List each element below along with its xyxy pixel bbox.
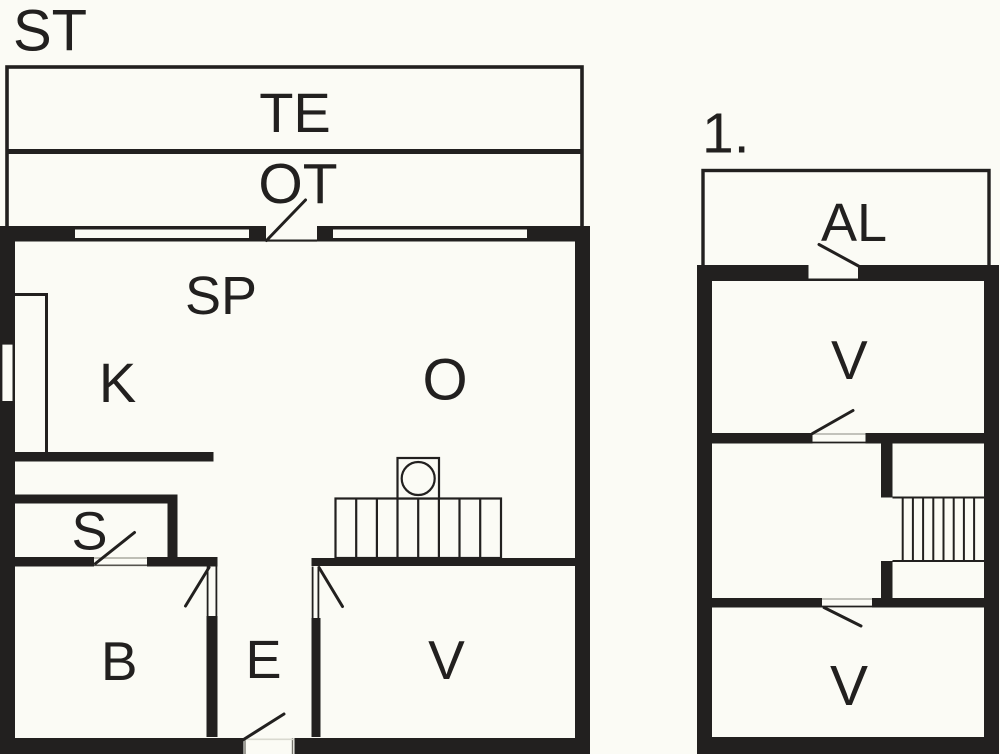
svg-text:SP: SP bbox=[185, 266, 257, 326]
svg-text:V: V bbox=[830, 654, 868, 718]
svg-text:V: V bbox=[831, 329, 868, 391]
svg-text:TE: TE bbox=[259, 81, 331, 144]
svg-text:O: O bbox=[422, 348, 467, 413]
svg-text:AL: AL bbox=[821, 193, 887, 253]
svg-text:K: K bbox=[99, 351, 136, 414]
svg-text:ST: ST bbox=[13, 0, 87, 64]
svg-text:1.: 1. bbox=[702, 102, 750, 166]
svg-text:S: S bbox=[71, 502, 107, 562]
svg-text:E: E bbox=[245, 630, 281, 690]
svg-text:OT: OT bbox=[258, 152, 337, 216]
svg-text:B: B bbox=[101, 630, 138, 692]
svg-text:V: V bbox=[428, 629, 465, 691]
